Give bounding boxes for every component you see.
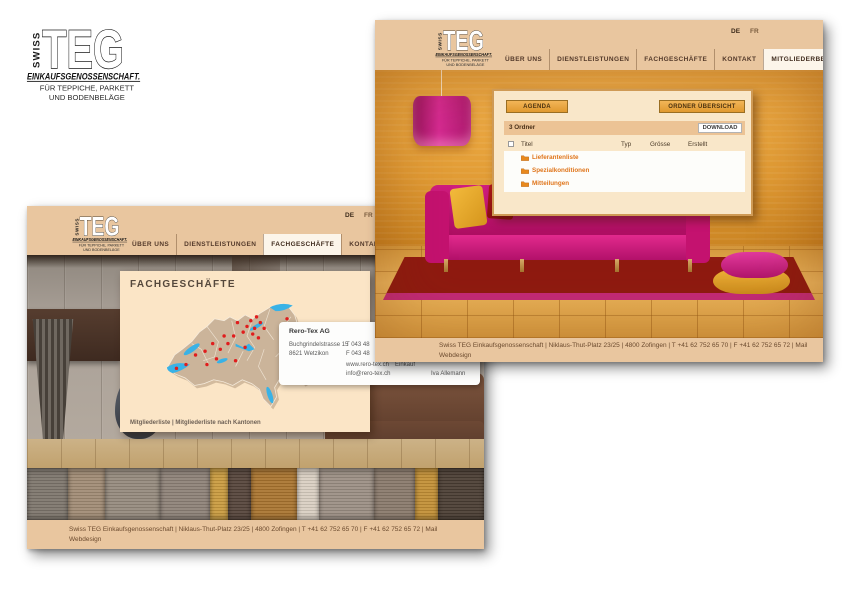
lang-de[interactable]: DE: [731, 28, 740, 35]
wood-floor: [27, 439, 484, 471]
folder-icon: [521, 155, 529, 161]
col-titel: Titel: [521, 138, 533, 151]
carpet-stripe: [160, 468, 210, 520]
carpet-stripe: [251, 468, 297, 520]
folder-name: Spezialkonditionen: [532, 167, 589, 174]
lamp-cord: [441, 70, 442, 97]
tooltip-company-name: Rero-Tex AG: [289, 328, 330, 335]
select-all-checkbox[interactable]: [508, 141, 514, 147]
carpet-stripe: [374, 468, 415, 520]
carpet-stripe: [415, 468, 438, 520]
tooltip-website-link[interactable]: www.rero-tex.ch: [346, 362, 389, 368]
tooltip-fax: F 043 48: [346, 351, 370, 357]
site-footer: Swiss TEG Einkaufsgenossenschaft | Nikla…: [27, 520, 484, 549]
folder-count: 3 Ordner: [509, 121, 535, 135]
folder-row[interactable]: Spezialkonditionen: [504, 164, 745, 177]
member-list-links: Mitgliederliste | Mitgliederliste nach K…: [130, 420, 261, 426]
main-nav: ÜBER UNS DIENSTLEISTUNGEN FACHGESCHÄFTE …: [498, 49, 823, 70]
tooltip-person: Iva Allemann: [431, 371, 465, 377]
mitgliederbereich-screenshot: DE FR ÜBER UNS DIENSTLEISTUNGEN FACHGESC…: [375, 20, 823, 362]
site-footer: Swiss TEG Einkaufsgenossenschaft | Nikla…: [375, 338, 823, 362]
design-canvas: SWISS TEG EINKAUFSGENOSSENSCHAFT. FÜR TE…: [0, 0, 842, 595]
footer-contact-line: Swiss TEG Einkaufsgenossenschaft | Nikla…: [439, 341, 817, 351]
nav-fachgeschaefte[interactable]: FACHGESCHÄFTE: [636, 49, 714, 70]
lang-fr[interactable]: FR: [750, 28, 759, 35]
yellow-pillow: [449, 185, 487, 229]
col-typ: Typ: [621, 138, 631, 151]
sofa-leg: [688, 259, 692, 272]
carpet-stripe: [68, 468, 105, 520]
folder-table-body: Lieferantenliste Spezialkonditionen Mitt…: [504, 151, 745, 192]
nav-dienstleistungen[interactable]: DIENSTLEISTUNGEN: [176, 234, 263, 255]
footer-webdesign-link[interactable]: Webdesign: [69, 535, 478, 545]
tooltip-street: Buchgrindelstrasse 15: [289, 342, 348, 348]
site-logo[interactable]: [435, 23, 493, 73]
carpet-stripe: [319, 468, 374, 520]
folder-row[interactable]: Lieferantenliste: [504, 151, 745, 164]
tooltip-phone: T 043 48: [346, 342, 370, 348]
carpet-stripe: [210, 468, 228, 520]
nav-dienstleistungen[interactable]: DIENSTLEISTUNGEN: [549, 49, 636, 70]
nav-ueber-uns[interactable]: ÜBER UNS: [498, 49, 549, 70]
living-room-photo: AGENDA ORDNER ÜBERSICHT 3 Ordner DOWNLOA…: [375, 70, 823, 338]
folder-name: Lieferantenliste: [532, 154, 579, 161]
carpet-stripe: [297, 468, 320, 520]
tooltip-city: 8621 Wetzikon: [289, 351, 329, 357]
tooltip-role: Einkauf: [395, 362, 415, 368]
folder-row[interactable]: Mitteilungen: [504, 177, 745, 190]
col-erstellt: Erstellt: [688, 138, 707, 151]
col-groesse: Grösse: [650, 138, 670, 151]
sofa-seat: [436, 235, 699, 260]
ordner-uebersicht-button[interactable]: ORDNER ÜBERSICHT: [659, 100, 745, 113]
folder-name: Mitteilungen: [532, 180, 569, 187]
nav-ueber-uns[interactable]: ÜBER UNS: [125, 234, 176, 255]
lang-de[interactable]: DE: [345, 212, 354, 219]
site-logo[interactable]: [72, 209, 128, 258]
tooltip-email-link[interactable]: info@rero-tex.ch: [346, 371, 390, 377]
member-area-panel: AGENDA ORDNER ÜBERSICHT 3 Ordner DOWNLOA…: [492, 89, 753, 216]
sofa-leg: [520, 259, 524, 272]
nav-fachgeschaefte[interactable]: FACHGESCHÄFTE: [263, 234, 341, 255]
download-button[interactable]: DOWNLOAD: [698, 123, 742, 133]
carpet-samples: [27, 468, 484, 520]
folder-toolbar: 3 Ordner DOWNLOAD: [504, 121, 745, 135]
folder-icon: [521, 168, 529, 174]
table-header: Titel Typ Grösse Erstellt: [504, 138, 745, 151]
lang-fr[interactable]: FR: [364, 212, 373, 219]
floor-pillow-magenta: [721, 252, 788, 278]
footer-contact-line: Swiss TEG Einkaufsgenossenschaft | Nikla…: [69, 525, 478, 535]
language-switcher: DE FR: [731, 28, 759, 35]
sofa-leg: [615, 259, 619, 272]
sofa-armrest: [425, 191, 449, 263]
carpet-stripe: [438, 468, 484, 520]
agenda-button[interactable]: AGENDA: [506, 100, 568, 113]
teg-logo: [26, 13, 142, 109]
nav-mitgliederbereich[interactable]: MITGLIEDERBEREICH: [763, 49, 823, 70]
carpet-stripe: [105, 468, 160, 520]
footer-webdesign-link[interactable]: Webdesign: [439, 351, 817, 361]
language-switcher: DE FR: [345, 212, 373, 219]
folder-icon: [521, 181, 529, 187]
pink-lamp: [413, 96, 471, 146]
page-title: FACHGESCHÄFTE: [130, 279, 236, 290]
sofa-leg: [444, 259, 448, 272]
link-mitgliederliste[interactable]: Mitgliederliste: [130, 420, 170, 426]
carpet-stripe: [27, 468, 68, 520]
carpet-stripe: [228, 468, 251, 520]
link-mitgliederliste-kantone[interactable]: Mitgliederliste nach Kantonen: [175, 420, 260, 426]
nav-kontakt[interactable]: KONTAKT: [714, 49, 763, 70]
site-header: DE FR ÜBER UNS DIENSTLEISTUNGEN FACHGESC…: [375, 20, 823, 70]
